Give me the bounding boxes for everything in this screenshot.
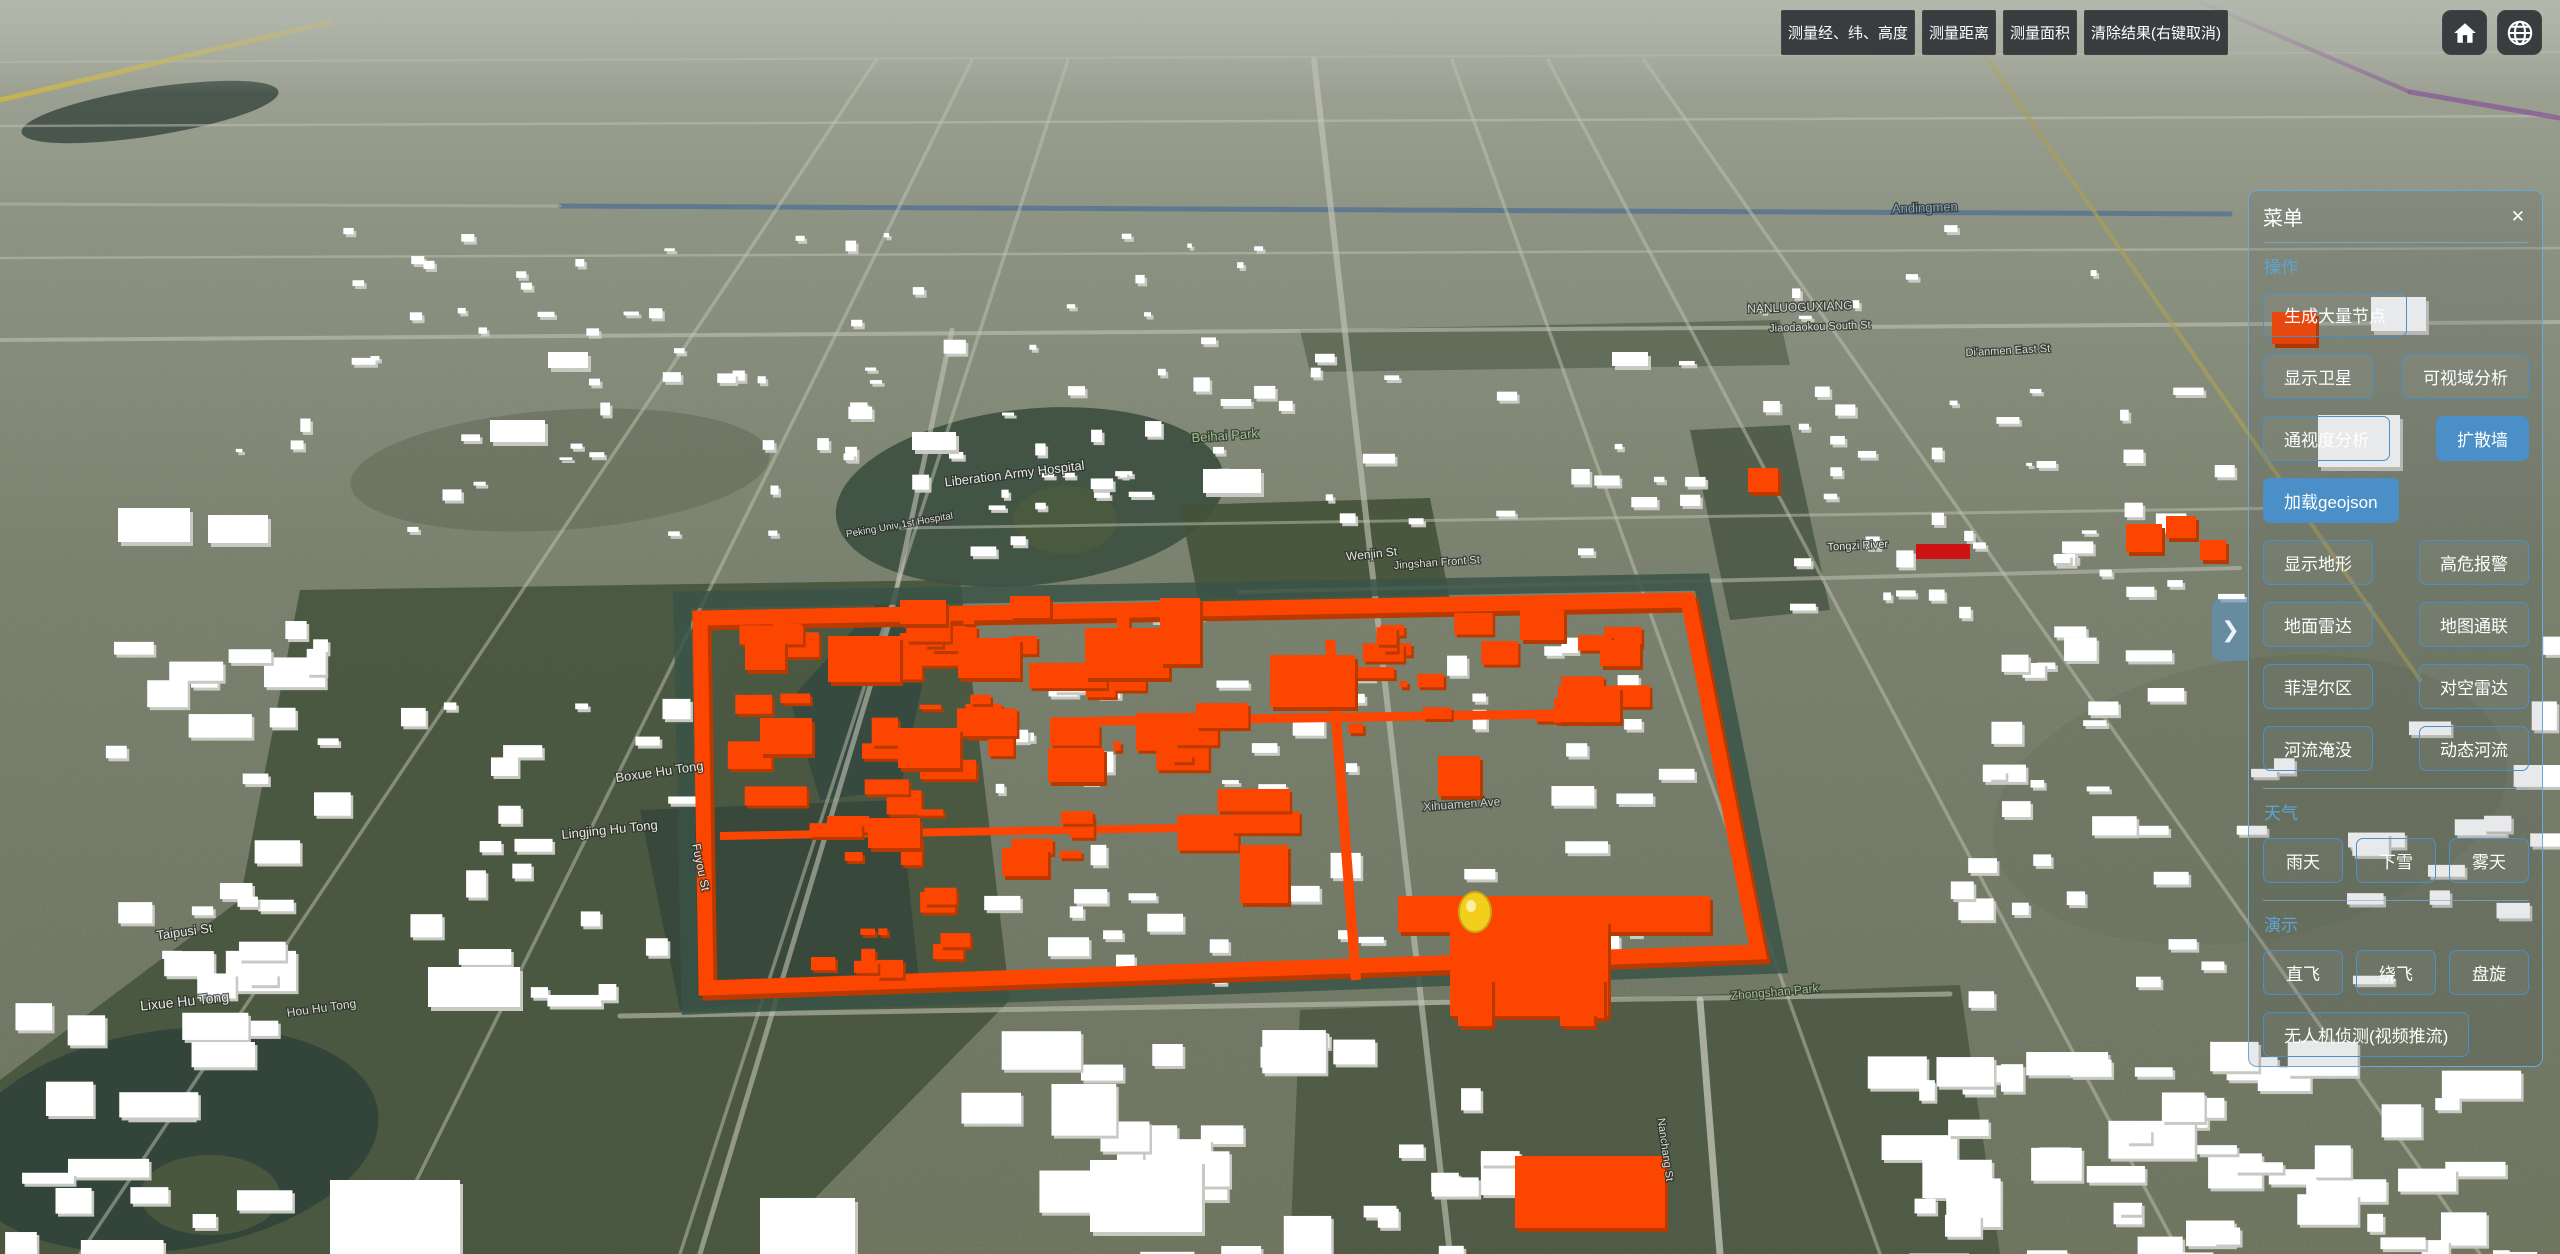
panel-collapse-tab[interactable]: ❯ bbox=[2212, 599, 2249, 661]
menu-row: 地面雷达地图通联 bbox=[2263, 602, 2529, 647]
ground-radar-button[interactable]: 地面雷达 bbox=[2263, 602, 2373, 647]
snow-button[interactable]: 下雪 bbox=[2356, 838, 2436, 883]
menu-row: 加载geojson bbox=[2263, 478, 2529, 523]
show-terrain-button[interactable]: 显示地形 bbox=[2263, 540, 2373, 585]
menu-row: 直飞绕飞盘旋 bbox=[2263, 950, 2529, 995]
measure-toolbar: 测量经、纬、高度测量距离测量面积清除结果(右键取消) bbox=[1781, 10, 2228, 55]
menu-row: 显示卫星可视域分析 bbox=[2263, 354, 2529, 399]
menu-sections: 操作生成大量节点显示卫星可视域分析通视度分析扩散墙加载geojson显示地形高危… bbox=[2263, 253, 2529, 1057]
air-radar-button[interactable]: 对空雷达 bbox=[2419, 664, 2529, 709]
diffusion-wall-button[interactable]: 扩散墙 bbox=[2436, 416, 2529, 461]
camera-marker[interactable] bbox=[1459, 892, 1491, 932]
menu-row: 河流淹没动态河流 bbox=[2263, 726, 2529, 771]
section-label-demo: 演示 bbox=[2264, 911, 2529, 936]
globe-button[interactable] bbox=[2497, 10, 2542, 55]
map-link-button[interactable]: 地图通联 bbox=[2419, 602, 2529, 647]
globe-icon bbox=[2505, 18, 2535, 48]
view-toolbar bbox=[2442, 10, 2542, 55]
section-divider bbox=[2263, 788, 2529, 789]
map-3d-scene[interactable]: Liberation Army HospitalPeking Univ 1st … bbox=[0, 0, 2560, 1254]
sightline-analysis-button[interactable]: 通视度分析 bbox=[2263, 416, 2390, 461]
menu-row: 生成大量节点 bbox=[2263, 292, 2529, 337]
direct-flight-button[interactable]: 直飞 bbox=[2263, 950, 2343, 995]
measure-distance-button[interactable]: 测量距离 bbox=[1922, 10, 1996, 55]
chevron-right-icon: ❯ bbox=[2221, 617, 2239, 643]
menu-panel: ❯ 菜单 ✕ 操作生成大量节点显示卫星可视域分析通视度分析扩散墙加载geojso… bbox=[2248, 190, 2543, 1067]
drone-detection-button[interactable]: 无人机侦测(视频推流) bbox=[2263, 1012, 2469, 1057]
menu-row: 雨天下雪雾天 bbox=[2263, 838, 2529, 883]
close-icon[interactable]: ✕ bbox=[2507, 206, 2529, 227]
dynamic-river-button[interactable]: 动态河流 bbox=[2419, 726, 2529, 771]
danger-alarm-button[interactable]: 高危报警 bbox=[2419, 540, 2529, 585]
clear-results-button[interactable]: 清除结果(右键取消) bbox=[2084, 10, 2228, 55]
viewshed-analysis-button[interactable]: 可视域分析 bbox=[2402, 354, 2529, 399]
section-label-weather: 天气 bbox=[2264, 799, 2529, 824]
fresnel-zone-button[interactable]: 菲涅尔区 bbox=[2263, 664, 2373, 709]
show-satellite-button[interactable]: 显示卫星 bbox=[2263, 354, 2373, 399]
home-button[interactable] bbox=[2442, 10, 2487, 55]
home-icon bbox=[2452, 20, 2478, 46]
section-label-operations: 操作 bbox=[2264, 253, 2529, 278]
map-label: Andingmen bbox=[1892, 199, 1958, 216]
load-geojson-button[interactable]: 加载geojson bbox=[2263, 478, 2399, 523]
rain-button[interactable]: 雨天 bbox=[2263, 838, 2343, 883]
section-divider bbox=[2263, 900, 2529, 901]
menu-row: 菲涅尔区对空雷达 bbox=[2263, 664, 2529, 709]
panel-title: 菜单 bbox=[2263, 202, 2303, 231]
generate-nodes-button[interactable]: 生成大量节点 bbox=[2263, 292, 2407, 337]
app-root: Liberation Army HospitalPeking Univ 1st … bbox=[0, 0, 2560, 1254]
fog-button[interactable]: 雾天 bbox=[2449, 838, 2529, 883]
river-flood-button[interactable]: 河流淹没 bbox=[2263, 726, 2373, 771]
menu-row: 无人机侦测(视频推流) bbox=[2263, 1012, 2529, 1057]
menu-row: 显示地形高危报警 bbox=[2263, 540, 2529, 585]
menu-row: 通视度分析扩散墙 bbox=[2263, 416, 2529, 461]
orbit-flight-button[interactable]: 绕飞 bbox=[2356, 950, 2436, 995]
hover-flight-button[interactable]: 盘旋 bbox=[2449, 950, 2529, 995]
measure-area-button[interactable]: 测量面积 bbox=[2003, 10, 2077, 55]
measure-position-button[interactable]: 测量经、纬、高度 bbox=[1781, 10, 1915, 55]
